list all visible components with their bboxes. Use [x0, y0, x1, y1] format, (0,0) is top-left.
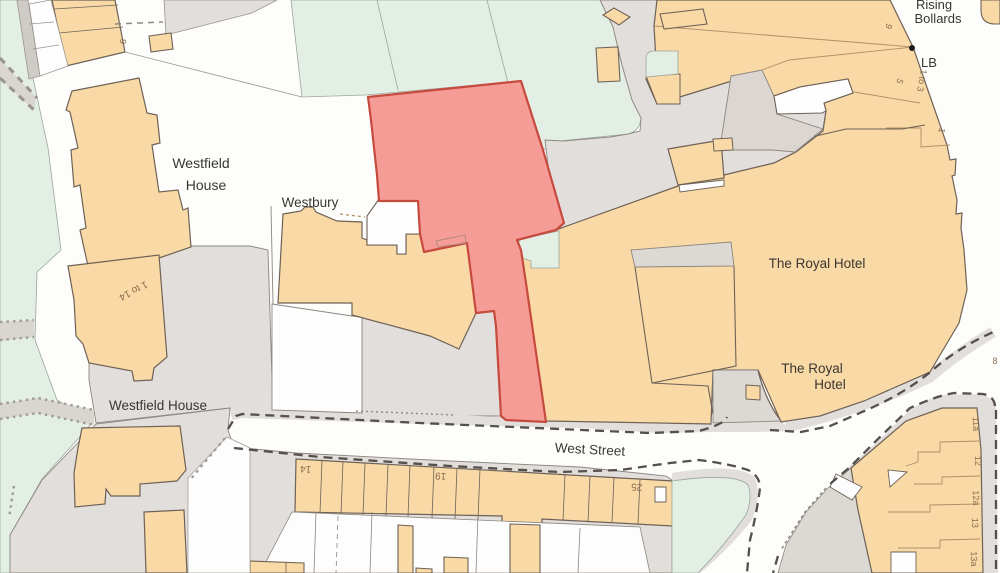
svg-text:House: House	[186, 177, 227, 193]
svg-text:11a: 11a	[971, 417, 981, 432]
svg-text:Bollards: Bollards	[915, 11, 962, 26]
svg-text:13: 13	[970, 518, 980, 528]
svg-text:8: 8	[992, 356, 997, 366]
svg-text:13a: 13a	[969, 551, 980, 566]
svg-text:The Royal: The Royal	[781, 361, 843, 376]
svg-text:Westbury: Westbury	[282, 195, 339, 210]
svg-text:25: 25	[630, 480, 642, 492]
svg-text:Westfield: Westfield	[172, 155, 229, 171]
svg-text:LB: LB	[921, 55, 937, 70]
svg-text:19: 19	[434, 469, 446, 481]
svg-text:Hotel: Hotel	[814, 377, 846, 392]
svg-text:14: 14	[299, 462, 311, 474]
svg-text:12: 12	[973, 456, 983, 466]
svg-text:Westfield House: Westfield House	[109, 398, 207, 413]
svg-text:The Royal Hotel: The Royal Hotel	[769, 256, 866, 271]
svg-text:12a: 12a	[971, 490, 982, 505]
